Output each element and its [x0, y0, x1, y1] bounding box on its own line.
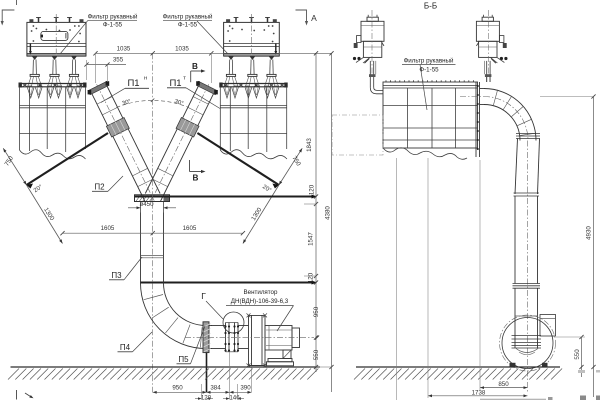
svg-text:Фильтр рукавный: Фильтр рукавный	[88, 14, 138, 21]
svg-text:Г: Г	[201, 291, 206, 301]
svg-text:1605: 1605	[183, 225, 197, 232]
svg-text:1035: 1035	[117, 46, 131, 53]
svg-text:Б-Б: Б-Б	[424, 2, 437, 11]
svg-text:950: 950	[313, 306, 320, 317]
svg-text:550: 550	[574, 349, 581, 360]
svg-text:120: 120	[309, 184, 316, 195]
svg-text:ø450: ø450	[139, 201, 154, 208]
svg-text:ДН(ВДН)-106-39-6,3: ДН(ВДН)-106-39-6,3	[231, 298, 289, 305]
svg-text:Ф-1-55: Ф-1-55	[103, 22, 123, 29]
svg-text:П1: П1	[127, 78, 139, 89]
svg-text:146: 146	[229, 394, 240, 400]
svg-text:1035: 1035	[175, 46, 189, 53]
svg-text:120: 120	[201, 394, 212, 400]
svg-text:Ф-1-55: Ф-1-55	[178, 22, 198, 29]
svg-text:Фильтр рукавный: Фильтр рукавный	[163, 14, 213, 21]
svg-text:950: 950	[172, 385, 183, 392]
svg-text:390: 390	[240, 385, 251, 392]
svg-text:384: 384	[210, 385, 221, 392]
svg-text:П1: П1	[169, 78, 181, 89]
svg-text:850: 850	[498, 381, 509, 388]
svg-text:н: н	[144, 76, 147, 82]
svg-text:т: т	[183, 76, 186, 82]
svg-text:П3: П3	[111, 271, 122, 280]
svg-text:1605: 1605	[101, 225, 115, 232]
svg-text:4930: 4930	[586, 226, 593, 240]
svg-text:1547: 1547	[308, 232, 315, 246]
svg-text:В: В	[193, 174, 199, 183]
svg-text:В: В	[192, 62, 198, 71]
svg-text:П5: П5	[178, 355, 189, 364]
svg-text:1843: 1843	[306, 138, 313, 152]
svg-text:Вентилятор: Вентилятор	[244, 289, 278, 296]
svg-text:П4: П4	[120, 343, 131, 352]
svg-text:4380: 4380	[325, 206, 332, 220]
svg-text:355: 355	[113, 57, 124, 64]
svg-text:1738: 1738	[472, 390, 486, 397]
svg-text:Фильтр рукавный: Фильтр рукавный	[404, 58, 454, 65]
svg-text:550: 550	[313, 349, 320, 360]
svg-text:А: А	[311, 13, 317, 23]
svg-text:Ф-1-55: Ф-1-55	[419, 67, 439, 74]
svg-text:П2: П2	[94, 183, 105, 192]
svg-text:120: 120	[308, 272, 315, 283]
